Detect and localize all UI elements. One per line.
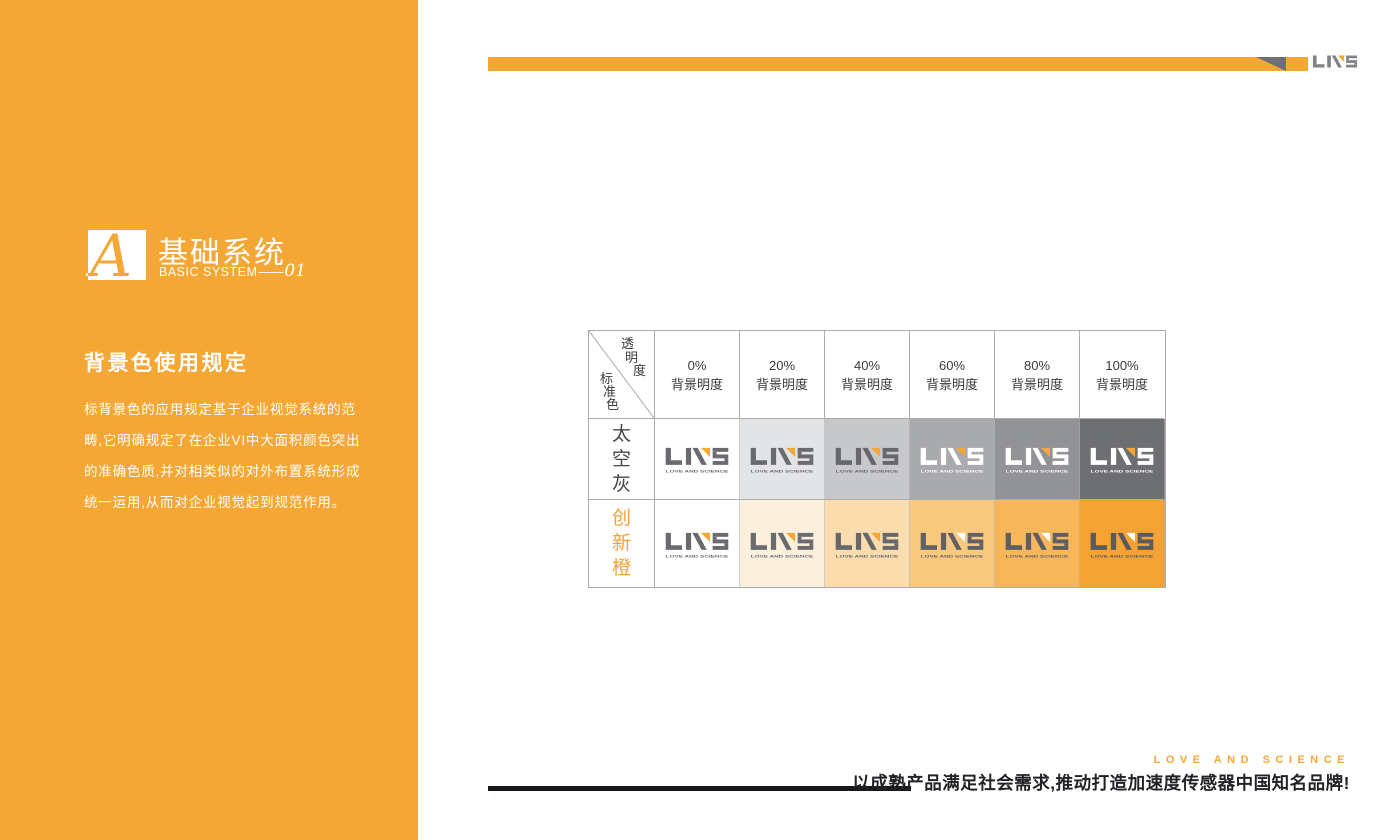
svg-text:LOVE AND SCIENCE: LOVE AND SCIENCE [836,553,899,558]
column-header: 60% 背景明度 [910,331,995,419]
logo-swatch-cell: LOVE AND SCIENCE [1080,500,1165,587]
table-row-innovation-orange: 创新橙 LOVE AND SCIENCE LOVE AND SCIENCE [589,500,1165,587]
logo-swatch-cell: LOVE AND SCIENCE [995,500,1080,587]
column-header: 20% 背景明度 [740,331,825,419]
lns-logo: LOVE AND SCIENCE [749,444,815,474]
logo-swatch-cell: LOVE AND SCIENCE [740,500,825,587]
logo-accent-triangle-icon [786,532,795,541]
lns-logo-small [1312,54,1358,69]
column-label: 背景明度 [671,375,723,394]
svg-text:LOVE AND SCIENCE: LOVE AND SCIENCE [1091,553,1154,558]
logo-accent-triangle-icon [1126,448,1135,457]
row-cells: LOVE AND SCIENCE LOVE AND SCIENCE LOVE A… [655,500,1165,587]
description-line: 的准确色质,并对相类似的对外布置系统形成 [84,456,366,487]
svg-text:LOVE AND SCIENCE: LOVE AND SCIENCE [1091,469,1154,474]
lns-logo: LOVE AND SCIENCE [1089,444,1155,474]
page-heading: 背景色使用规定 [84,347,249,377]
logo-accent-triangle-icon [786,448,795,457]
column-percent: 80% [1024,356,1050,375]
footer-slogan: 以成熟产品满足社会需求,推动打造加速度传感器中国知名品牌! [852,770,1350,795]
logo-swatch-cell: LOVE AND SCIENCE [655,419,740,500]
logo-swatch-cell: LOVE AND SCIENCE [995,419,1080,500]
logo-swatch-cell: LOVE AND SCIENCE [740,419,825,500]
column-header: 0% 背景明度 [655,331,740,419]
svg-text:LOVE AND SCIENCE: LOVE AND SCIENCE [1006,469,1069,474]
column-percent: 40% [854,356,880,375]
column-label: 背景明度 [1096,375,1148,394]
section-subtitle: BASIC SYSTEM —— 01 [159,261,306,281]
logo-accent-triangle-icon [956,532,965,541]
lns-logo: LOVE AND SCIENCE [919,444,985,474]
section-subtitle-dash: —— [258,265,283,279]
svg-text:LOVE AND SCIENCE: LOVE AND SCIENCE [751,553,814,558]
row-label-space-gray: 太空灰 [589,419,655,500]
column-label: 背景明度 [1011,375,1063,394]
logo-swatch-cell: LOVE AND SCIENCE [1080,419,1165,500]
sidebar: A A 基础系统 BASIC SYSTEM —— 01 背景色使用规定 标背景色… [0,0,418,840]
column-header: 40% 背景明度 [825,331,910,419]
lns-logo: LOVE AND SCIENCE [919,529,985,559]
logo-swatch-cell: LOVE AND SCIENCE [910,419,995,500]
logo-swatch-cell: LOVE AND SCIENCE [655,500,740,587]
section-subtitle-en: BASIC SYSTEM [159,265,257,279]
table-row-space-gray: 太空灰 LOVE AND SCIENCE LOVE AND SCIENCE [589,419,1165,500]
column-percent: 100% [1105,356,1138,375]
description-text: 标背景色的应用规定基于企业视觉系统的范 畴,它明确规定了在企业VI中大面积颜色突… [84,394,366,518]
column-percent: 60% [939,356,965,375]
lns-logo: LOVE AND SCIENCE [1004,529,1070,559]
table-corner-cell: 透 明 度 标 准 色 [589,331,655,419]
column-label: 背景明度 [756,375,808,394]
logo-accent-triangle-icon [1041,532,1050,541]
column-percent: 20% [769,356,795,375]
logo-accent-triangle-icon [1041,448,1050,457]
corner-top-char: 度 [633,360,646,379]
row-cells: LOVE AND SCIENCE LOVE AND SCIENCE LOVE A… [655,419,1165,500]
svg-text:LOVE AND SCIENCE: LOVE AND SCIENCE [836,469,899,474]
page: A A 基础系统 BASIC SYSTEM —— 01 背景色使用规定 标背景色… [0,0,1400,840]
svg-text:LOVE AND SCIENCE: LOVE AND SCIENCE [921,553,984,558]
column-percent: 0% [688,356,707,375]
column-header: 100% 背景明度 [1080,331,1164,419]
logo-accent-triangle-icon [871,532,880,541]
bar-notch-triangle-icon [1256,57,1286,71]
logo-swatch-cell: LOVE AND SCIENCE [825,500,910,587]
lns-logo: LOVE AND SCIENCE [1004,444,1070,474]
row-label-text: 创新橙 [611,506,632,581]
footer-rule-line [488,786,911,791]
corner-bottom-char: 色 [606,394,619,413]
logo-swatch-cell: LOVE AND SCIENCE [825,419,910,500]
row-label-text: 太空灰 [611,422,632,497]
description-line: 畴,它明确规定了在企业VI中大面积颜色突出 [84,425,366,456]
lns-logo: LOVE AND SCIENCE [664,444,730,474]
lns-logo: LOVE AND SCIENCE [664,529,730,559]
column-label: 背景明度 [841,375,893,394]
lns-logo: LOVE AND SCIENCE [749,529,815,559]
logo-accent-triangle-icon [871,448,880,457]
svg-text:LOVE AND SCIENCE: LOVE AND SCIENCE [1006,553,1069,558]
lns-logo: LOVE AND SCIENCE [834,529,900,559]
svg-text:LOVE AND SCIENCE: LOVE AND SCIENCE [666,553,729,558]
svg-text:LOVE AND SCIENCE: LOVE AND SCIENCE [666,469,729,474]
lns-logo: LOVE AND SCIENCE [834,444,900,474]
table-header-row: 透 明 度 标 准 色 0% 背景明度 20% 背景明度 40% 背景明度 60… [589,331,1165,419]
background-color-table: 透 明 度 标 准 色 0% 背景明度 20% 背景明度 40% 背景明度 60… [588,330,1166,588]
column-label: 背景明度 [926,375,978,394]
top-accent-bar [488,57,1308,71]
row-label-innovation-orange: 创新橙 [589,500,655,587]
column-header: 80% 背景明度 [995,331,1080,419]
logo-accent-triangle-icon [1126,532,1135,541]
logo-letter-outer: A [86,222,132,284]
section-number: 01 [284,261,306,281]
footer-tagline-en: LOVE AND SCIENCE [1154,754,1350,766]
logo-accent-triangle-icon [701,532,710,541]
logo-accent-triangle-icon [1338,56,1344,62]
svg-text:LOVE AND SCIENCE: LOVE AND SCIENCE [921,469,984,474]
letter-a-logo-icon: A A [86,218,150,284]
logo-accent-triangle-icon [701,448,710,457]
description-line: 统一运用,从而对企业视觉起到规范作用。 [84,487,366,518]
svg-text:LOVE AND SCIENCE: LOVE AND SCIENCE [751,469,814,474]
logo-swatch-cell: LOVE AND SCIENCE [910,500,995,587]
logo-accent-triangle-icon [956,448,965,457]
lns-logo: LOVE AND SCIENCE [1089,529,1155,559]
description-line: 标背景色的应用规定基于企业视觉系统的范 [84,394,366,425]
